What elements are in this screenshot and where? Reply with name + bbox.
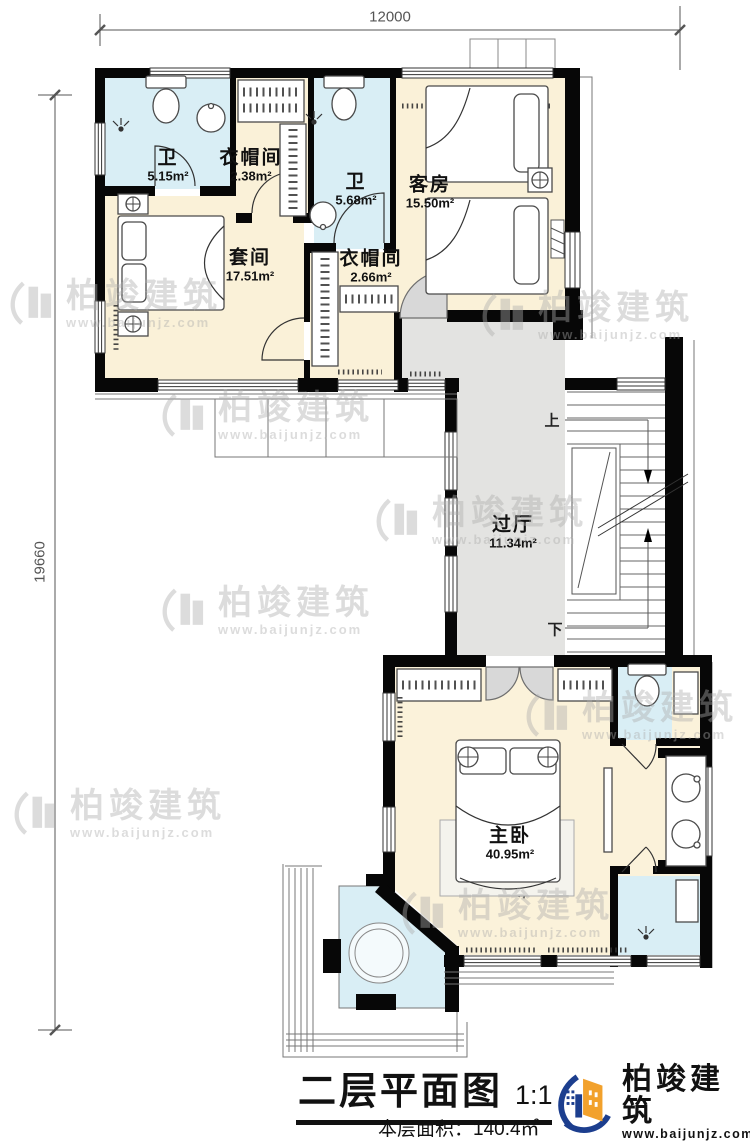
company-logo-website: www.baijunjz.com <box>622 1127 750 1141</box>
floor-area-label: 本层面积：140.4㎡ <box>378 1114 540 1141</box>
company-logo-brand: 柏竣建筑 <box>622 1064 750 1127</box>
closet-hatch <box>551 220 564 258</box>
dimension-left: 19660 <box>32 541 49 583</box>
room-label-suite: 套间17.51m² <box>226 248 274 285</box>
bath-closet <box>674 672 698 714</box>
master-bed-icon <box>440 740 574 896</box>
floor-plan-page: 12000 19660 卫5.15m² 衣帽间2.38m² 卫5.68m² 客房… <box>0 0 750 1148</box>
room-label-bath-2: 卫5.68m² <box>335 172 376 209</box>
room-label-bath-1: 卫5.15m² <box>147 148 188 185</box>
round-tub-icon <box>349 923 409 983</box>
room-label-master-bedroom: 主卧40.95m² <box>486 826 534 863</box>
dimension-top: 12000 <box>369 9 411 26</box>
stair-up-label: 上 <box>544 410 559 431</box>
company-logo-icon <box>554 1070 616 1136</box>
company-logo: 柏竣建筑 www.baijunjz.com <box>552 1062 750 1143</box>
vanity-basins <box>666 756 706 866</box>
room-label-cloakroom-2: 衣帽间2.66m² <box>339 249 402 286</box>
mirror <box>604 768 612 852</box>
plan-title: 二层平面图 <box>298 1060 503 1115</box>
washbasin-icon <box>197 104 225 133</box>
room-label-hall: 过厅11.34m² <box>489 515 537 552</box>
stair-down-label: 下 <box>547 619 562 640</box>
room-label-guest-room: 客房15.50m² <box>406 175 454 212</box>
room-label-cloakroom-1: 衣帽间2.38m² <box>219 148 282 185</box>
bath-closet <box>676 880 698 922</box>
